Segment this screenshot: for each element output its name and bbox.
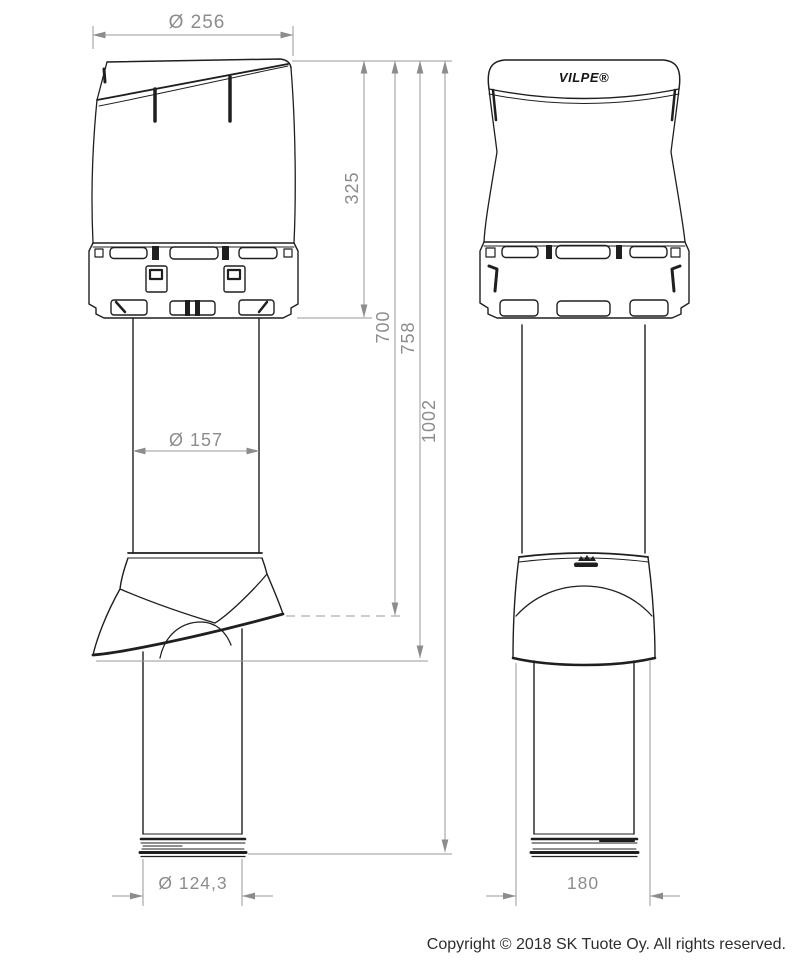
- label-pipe-diameter: Ø 157: [169, 430, 223, 450]
- front-view: VILPE®: [480, 60, 689, 857]
- label-1002: 1002: [419, 399, 439, 443]
- dimension-flashing-width: [486, 661, 680, 906]
- copyright-text: Copyright © 2018 SK Tuote Oy. All rights…: [427, 936, 786, 953]
- front-vent-band: [480, 242, 689, 318]
- dimension-758: [96, 61, 428, 661]
- dimension-labels: Ø 256 325 700 758 1002 Ø 157 Ø 124,3 180: [158, 12, 599, 893]
- side-latches: [146, 266, 245, 292]
- vent-technical-drawing: VILPE®: [0, 0, 800, 966]
- dimensions: [93, 26, 680, 906]
- side-vent-band: [89, 243, 298, 318]
- front-upper-pipe: [522, 325, 645, 553]
- front-lower-pipe: [531, 661, 638, 857]
- label-top-diameter: Ø 256: [169, 12, 226, 33]
- technical-drawing-page: VILPE®: [0, 0, 800, 966]
- label-758: 758: [398, 321, 418, 354]
- side-lower-pipe: [140, 629, 246, 857]
- cap-clip-mark: [104, 69, 105, 82]
- front-edge-clip-right: [672, 266, 680, 291]
- side-view: [89, 59, 298, 857]
- label-325: 325: [342, 171, 362, 204]
- front-edge-clip-left: [489, 266, 497, 291]
- label-lower-pipe-diameter: Ø 124,3: [158, 873, 227, 893]
- side-hood-cap: [92, 59, 295, 243]
- vilpe-logo: VILPE®: [559, 70, 609, 85]
- sk-tuote-logo: [574, 555, 598, 567]
- side-flashing: [93, 553, 283, 658]
- front-flashing: [513, 553, 655, 665]
- label-700: 700: [373, 310, 393, 343]
- label-flashing-width: 180: [567, 873, 599, 893]
- front-hood-cap: [484, 60, 685, 242]
